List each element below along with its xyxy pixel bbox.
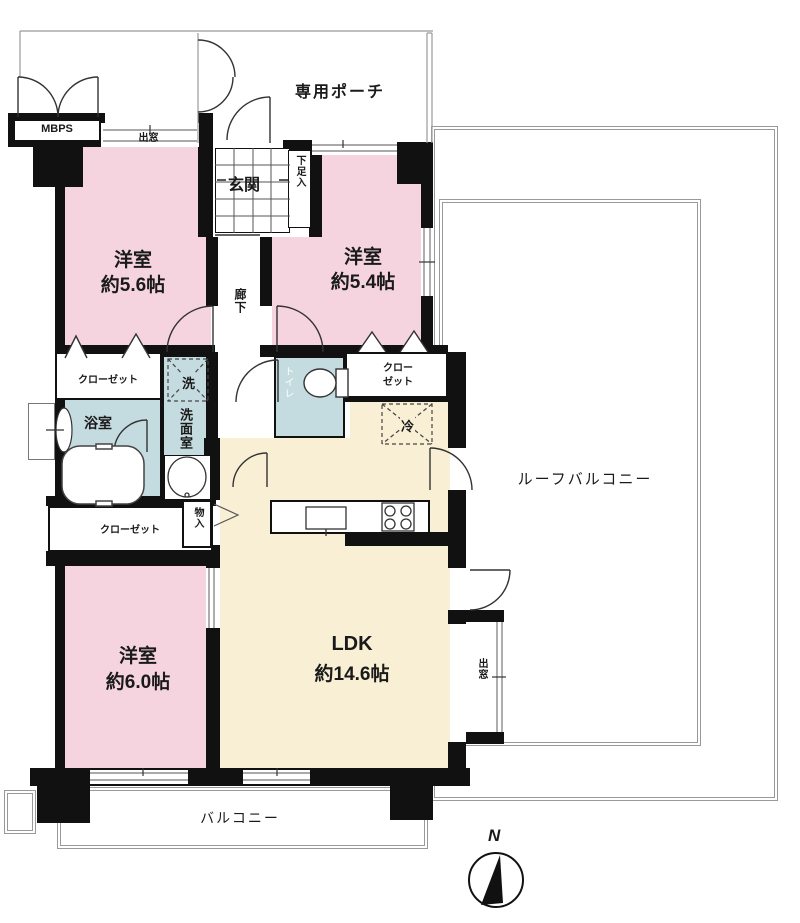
closet-right-label-2: ゼット (368, 373, 428, 388)
mbps-label: MBPS (14, 123, 100, 135)
room1-size-label: 約5.6帖 (73, 270, 193, 297)
closet-right-label-1: クロー (368, 359, 428, 374)
compass-north-label: N (488, 826, 500, 846)
pipe-space-left (28, 403, 55, 460)
washroom-label: 洗面室 (176, 408, 195, 500)
wall-corridor-right-a (260, 237, 272, 306)
room2-name-label: 洋室 (303, 242, 423, 269)
entrance-door-icon (227, 97, 270, 143)
closet-bottom-label: クローゼット (70, 521, 190, 536)
wall-closet-bottom (46, 551, 216, 566)
bay-window-cap-bottom (466, 732, 504, 744)
pillar-bottom-right (390, 768, 433, 820)
window-gap-bottom-1 (90, 770, 188, 784)
porch-doors-icon (198, 40, 235, 112)
kitchen-counter (270, 500, 430, 534)
room-ldk (220, 438, 450, 770)
wall-ldk-right-a (448, 396, 466, 448)
window-gap-bottom-2 (243, 770, 310, 784)
wall-kitchen-bar (345, 532, 465, 546)
shoe-cabinet-label: 下足入 (292, 155, 307, 225)
toilet-door-icon (236, 360, 278, 402)
balcony-partition-left (4, 790, 36, 834)
wall-room3-ldk (206, 628, 220, 770)
closet-top-left-label: クローゼット (58, 371, 158, 386)
pillar-top-right (397, 142, 433, 184)
window-gap-top-54 (312, 141, 397, 155)
entrance-label: 玄関 (228, 171, 260, 195)
wall-left (55, 185, 65, 772)
washer-label: 洗 (181, 373, 196, 392)
wall-right-54-a (421, 180, 433, 228)
mbps-doors-icon (18, 77, 98, 117)
bay-window-right-label: 出窓 (474, 658, 489, 702)
ldk-size-label: 約14.6帖 (282, 659, 422, 686)
wall-corridor-left-a (206, 237, 218, 306)
wall-ldk-right-d (448, 742, 466, 786)
private-porch-label: 専用ポーチ (280, 78, 400, 102)
floor-plan: 専用ポーチ MBPS 出窓 玄関 下足入 廊下 洋室 約5.6帖 洋室 約5.4… (0, 0, 800, 923)
hallway-label: 廊下 (232, 288, 249, 332)
room2-size-label: 約5.4帖 (303, 267, 423, 294)
compass-icon (469, 853, 523, 907)
bathroom-label: 浴室 (84, 413, 112, 433)
wall-ldk-right-c (448, 610, 466, 624)
wall-corridor-left-b (206, 352, 218, 445)
room1-name-label: 洋室 (73, 245, 193, 272)
slider-gap-room3 (206, 568, 220, 628)
balcony-label: バルコニー (180, 808, 300, 828)
ldk-name-label: LDK (292, 633, 412, 656)
pillar-top-left (33, 145, 83, 187)
bay-window-top-label: 出窓 (121, 129, 176, 144)
storage-label: 物入 (190, 507, 205, 543)
room3-name-label: 洋室 (78, 641, 198, 668)
refrigerator-label: 冷 (400, 416, 415, 435)
bay-window-cap-top (466, 610, 504, 622)
wall-ldk-right-b (448, 490, 466, 568)
roof-balcony-label: ルーフバルコニー (460, 468, 710, 489)
toilet-label: トイレ (280, 366, 295, 432)
room3-size-label: 約6.0帖 (78, 667, 198, 694)
wall-entrance-left (198, 113, 213, 237)
wall-corridor-right-b (260, 345, 272, 357)
